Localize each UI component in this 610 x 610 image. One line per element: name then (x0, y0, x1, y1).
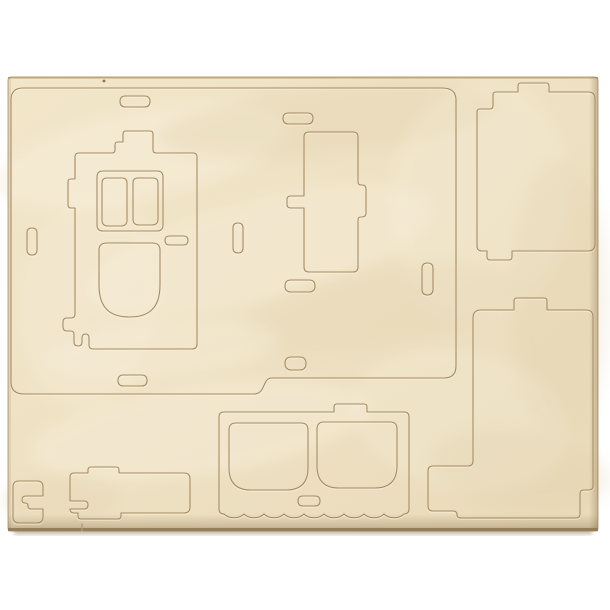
wood-speck (103, 80, 106, 83)
plywood-sheet (0, 67, 610, 534)
product-photo (0, 0, 610, 610)
plywood-sheet-photo (0, 0, 610, 610)
speck-layer (103, 80, 106, 83)
